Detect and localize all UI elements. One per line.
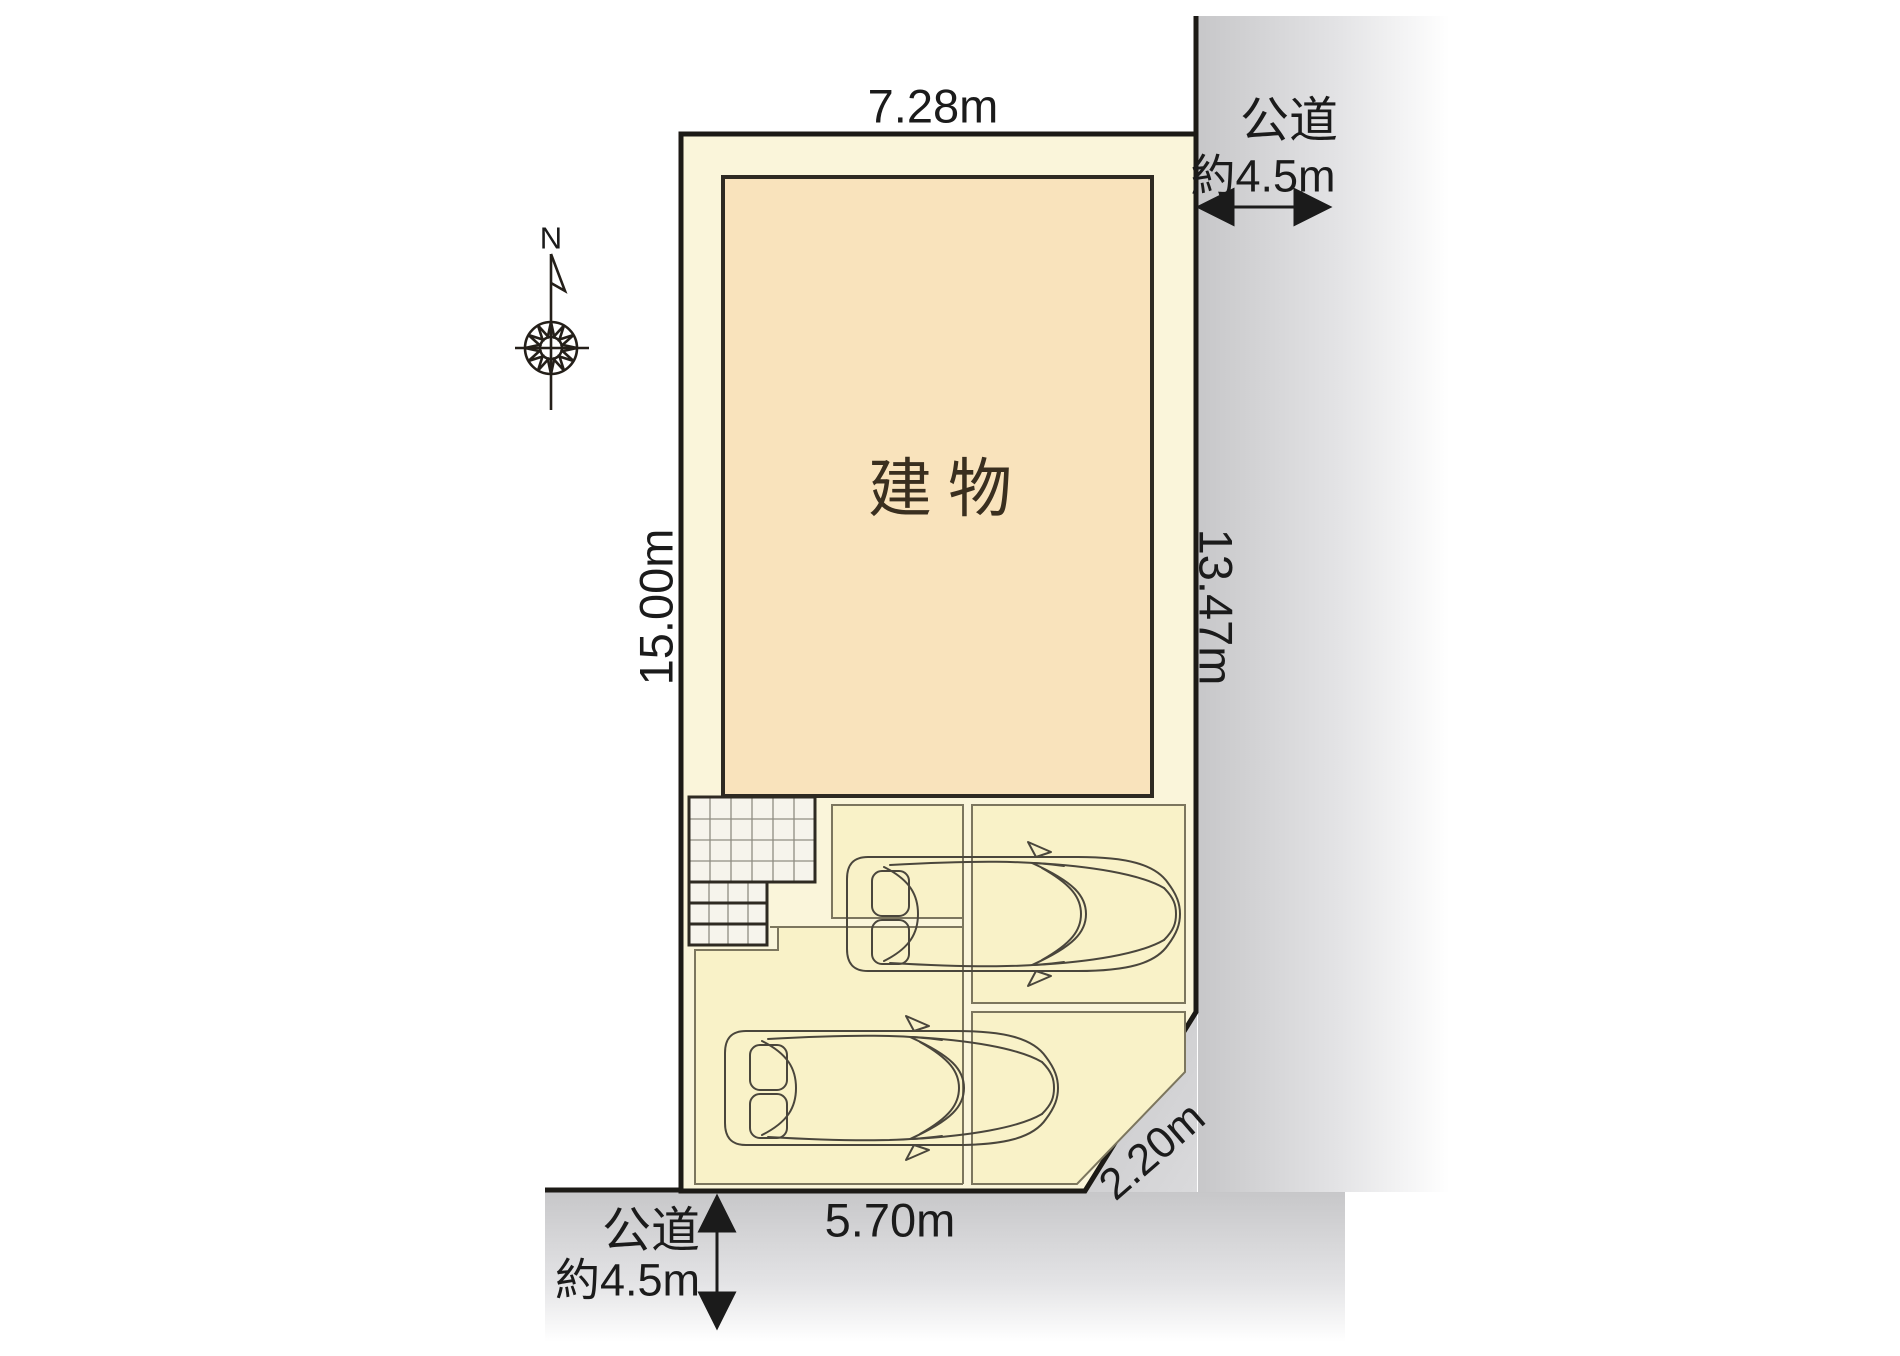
site-plan-svg: 建物 N 7.28m 15.00m 13.47m 5.70m 2.20m 公道 … [0,0,1900,1356]
parking-stall-upper-right-fill [972,805,1185,1003]
building-label: 建物 [868,453,1028,525]
road-bottom-name: 公道 [602,1204,700,1258]
parking-stall-upper-left-fill [832,805,963,918]
road-bottom-width: 約4.5m [555,1255,700,1306]
dimension-top: 7.28m [868,80,999,133]
road-right-name: 公道 [1240,94,1338,148]
dimension-right: 13.47m [1190,529,1243,686]
compass-north-label: N [540,221,562,256]
compass-arrowhead [551,254,565,291]
road-right-width: 約4.5m [1190,151,1335,202]
site-plan-page: 建物 N 7.28m 15.00m 13.47m 5.70m 2.20m 公道 … [0,0,1900,1356]
dimension-left: 15.00m [630,529,683,686]
dimension-bottom: 5.70m [825,1194,956,1247]
compass: N [515,221,589,411]
